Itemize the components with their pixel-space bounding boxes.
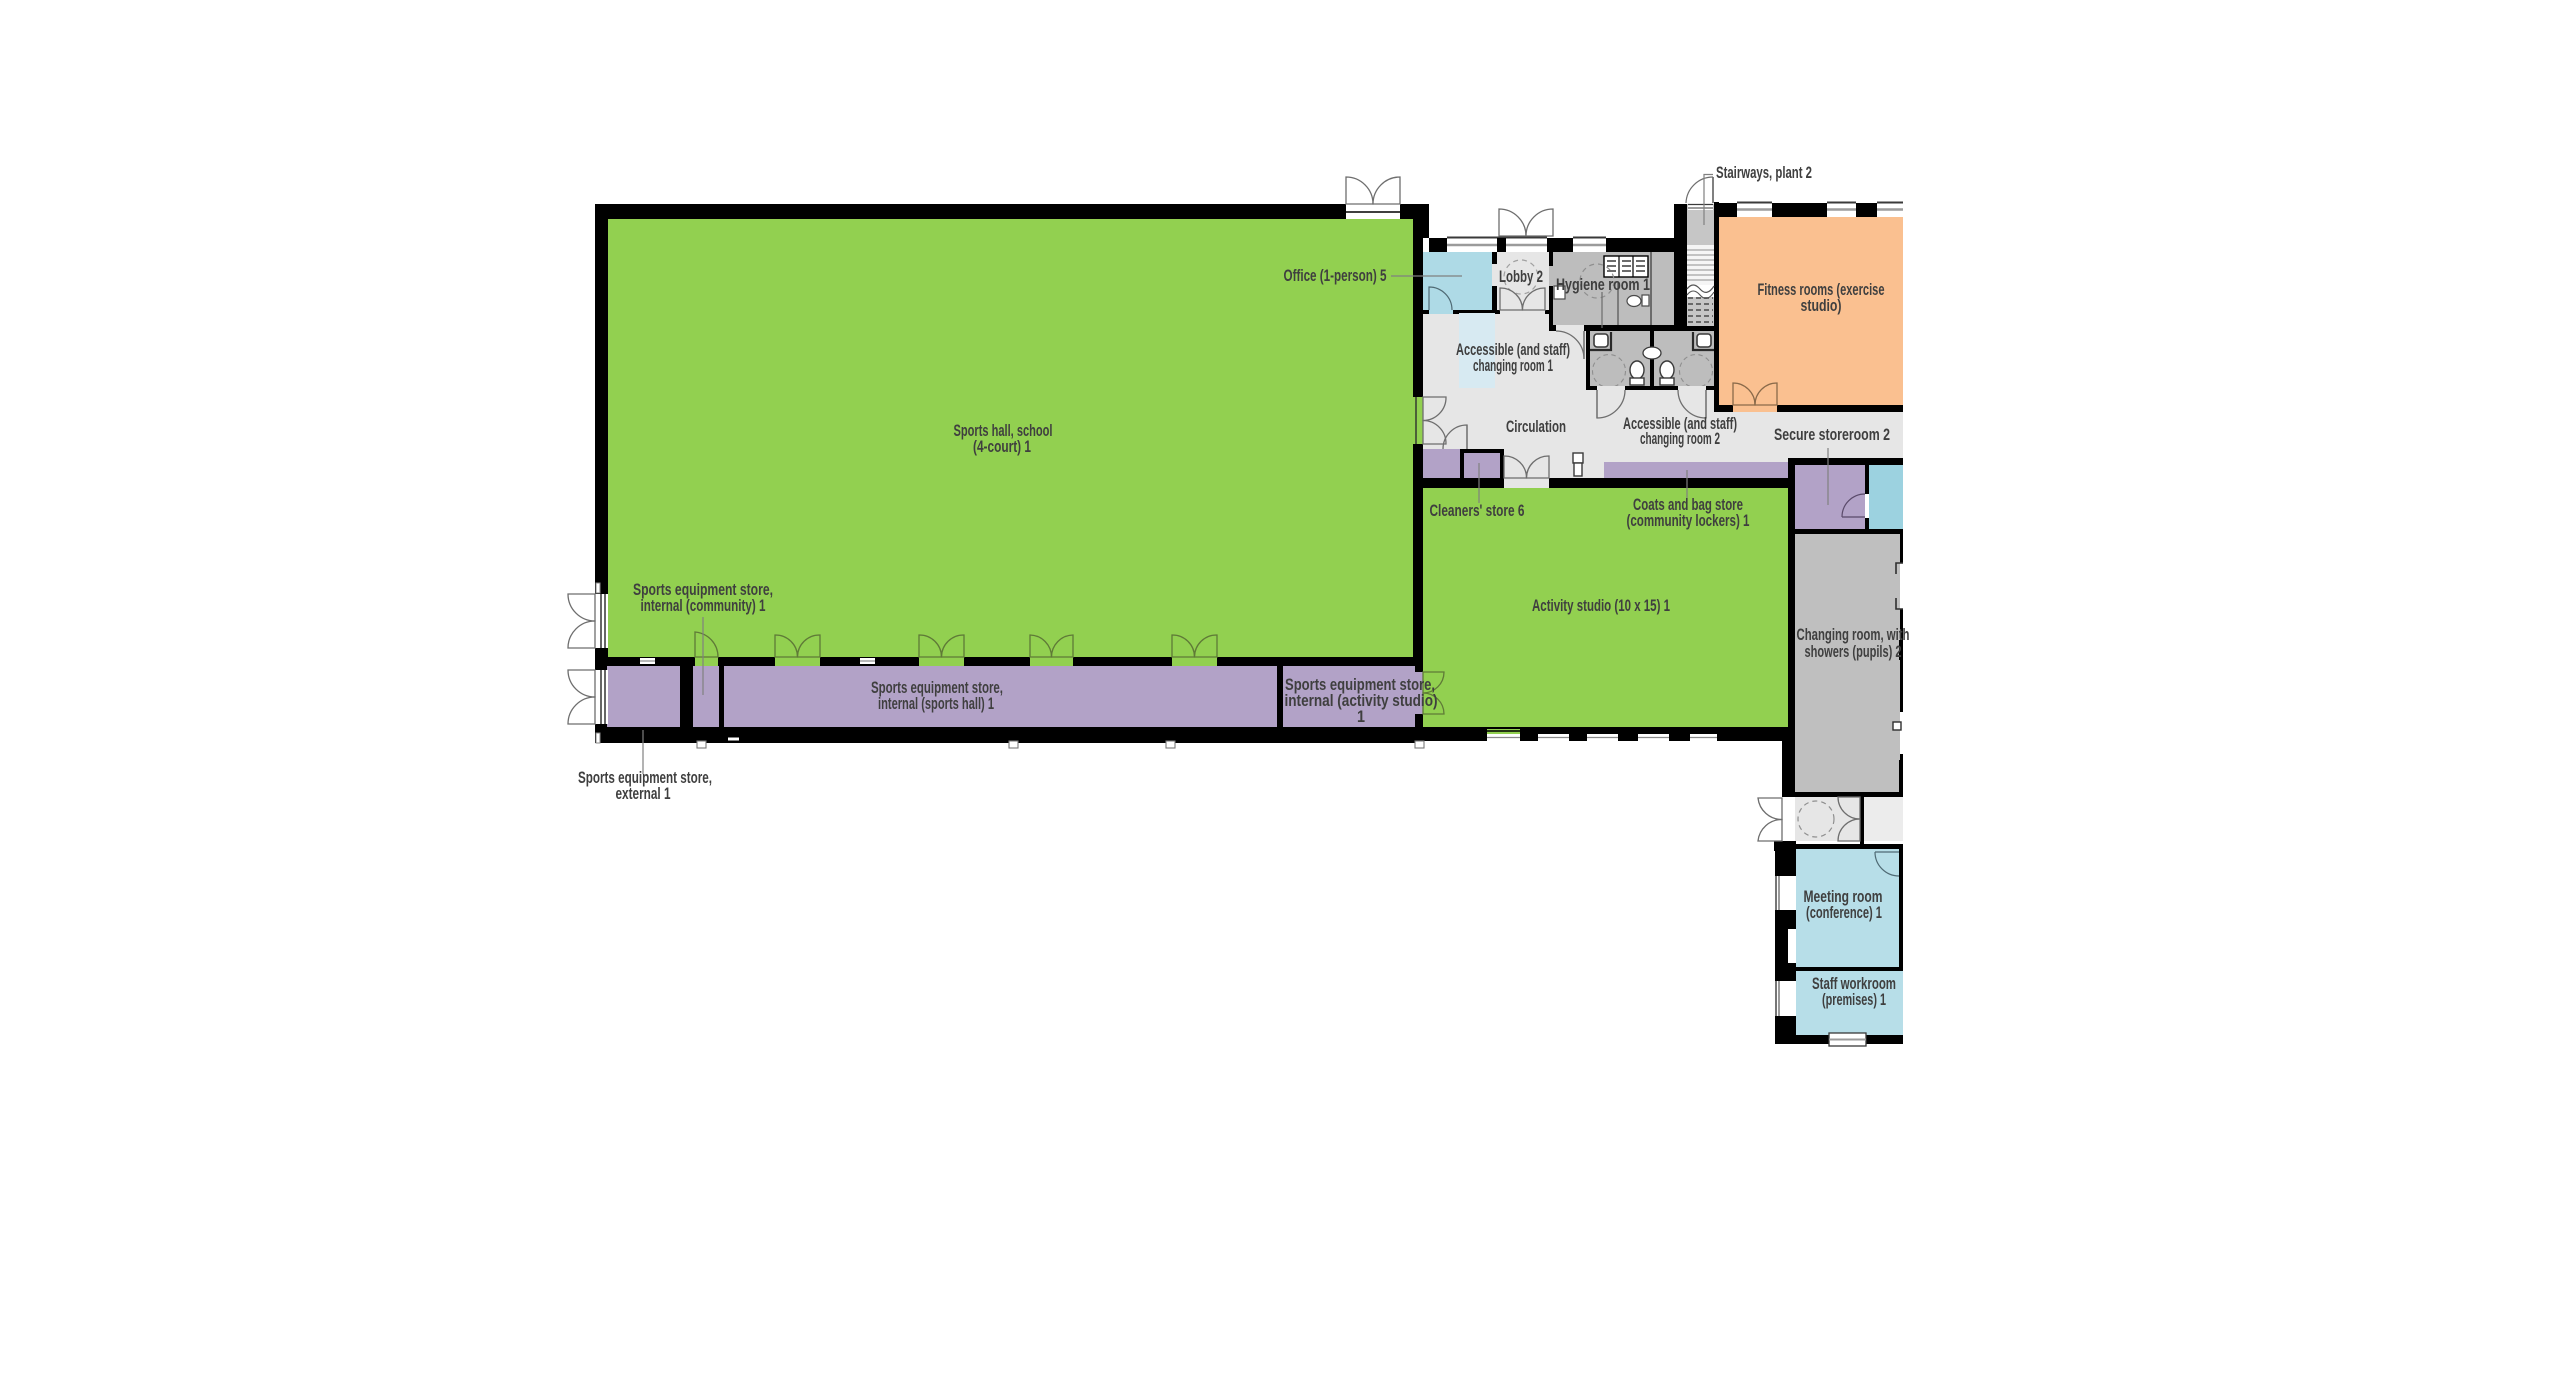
svg-text:changing room 2: changing room 2 bbox=[1640, 430, 1720, 448]
svg-text:(community lockers) 1: (community lockers) 1 bbox=[1627, 512, 1750, 530]
svg-text:Changing room, with: Changing room, with bbox=[1797, 626, 1910, 644]
svg-text:showers (pupils) 2: showers (pupils) 2 bbox=[1805, 643, 1902, 661]
svg-text:Stairways, plant 2: Stairways, plant 2 bbox=[1716, 164, 1812, 182]
svg-text:studio): studio) bbox=[1801, 297, 1842, 315]
svg-text:Circulation: Circulation bbox=[1506, 418, 1566, 436]
svg-text:internal (sports hall) 1: internal (sports hall) 1 bbox=[878, 695, 994, 713]
svg-text:external 1: external 1 bbox=[616, 785, 671, 803]
svg-text:1: 1 bbox=[1357, 708, 1365, 726]
svg-text:Secure storeroom 2: Secure storeroom 2 bbox=[1774, 426, 1890, 444]
svg-text:changing room 1: changing room 1 bbox=[1473, 357, 1553, 375]
svg-text:Lobby 2: Lobby 2 bbox=[1499, 268, 1543, 286]
svg-text:(conference) 1: (conference) 1 bbox=[1806, 904, 1882, 922]
svg-text:internal (community) 1: internal (community) 1 bbox=[641, 597, 766, 615]
svg-text:(4-court) 1: (4-court) 1 bbox=[973, 438, 1031, 456]
svg-text:(premises) 1: (premises) 1 bbox=[1822, 991, 1886, 1009]
svg-text:Cleaners' store 6: Cleaners' store 6 bbox=[1430, 502, 1525, 520]
svg-text:Office (1-person) 5: Office (1-person) 5 bbox=[1284, 267, 1387, 285]
svg-text:Hygiene room 1: Hygiene room 1 bbox=[1556, 276, 1650, 294]
svg-text:Activity studio (10 x 15) 1: Activity studio (10 x 15) 1 bbox=[1532, 597, 1670, 615]
